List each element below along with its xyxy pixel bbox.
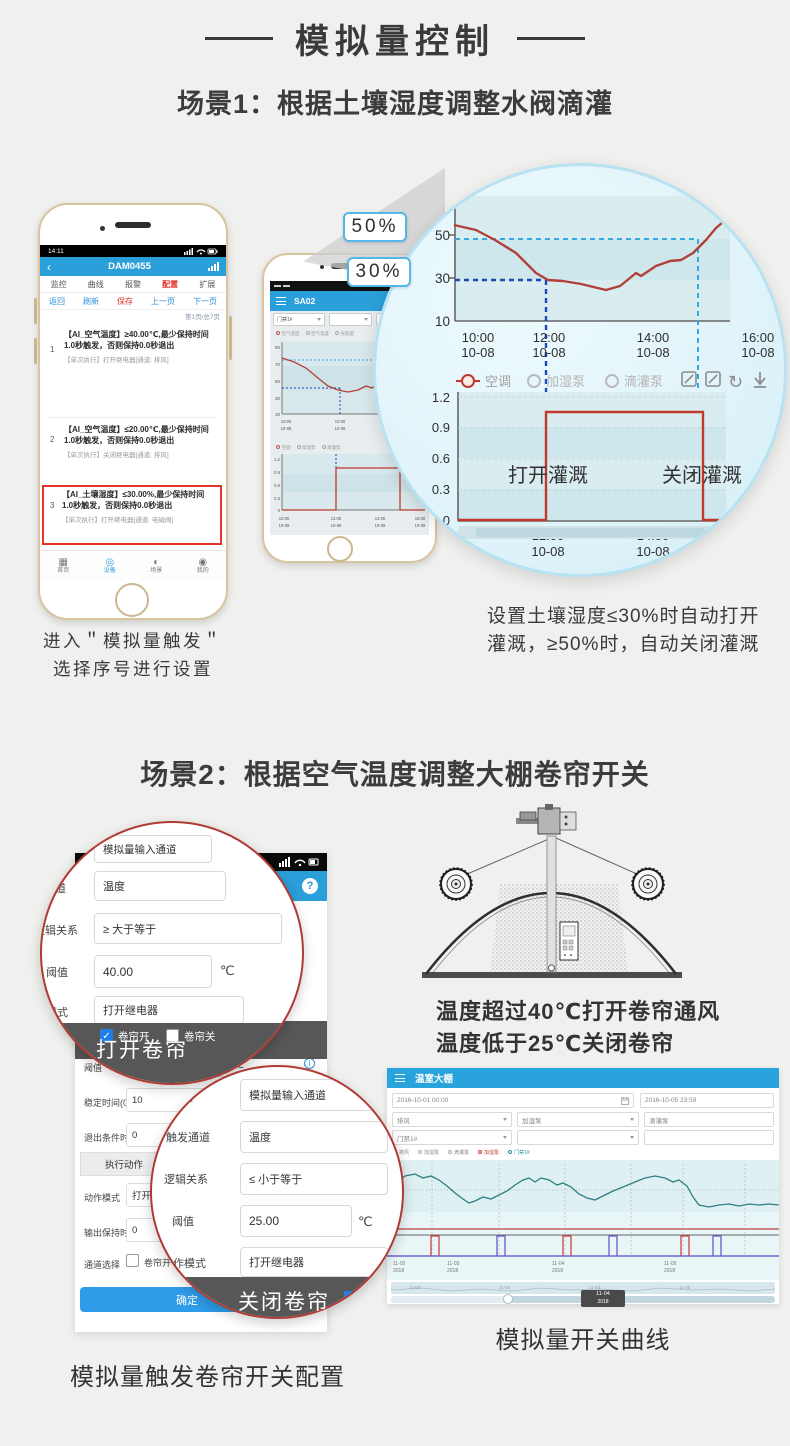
phone1-caption-line2: 选择序号进行设置 — [24, 656, 242, 681]
logic-relation-label: 逻辑关系 — [164, 1171, 208, 1187]
dashboard-card: 温室大棚 2016-10-01 00:00 2016-10-05 23:59 排… — [387, 1068, 779, 1304]
right-roller-wheel — [632, 868, 664, 900]
greenhouse-note-line2: 温度低于25℃关闭卷帘 — [436, 1026, 674, 1058]
svg-text:11-05: 11-05 — [664, 1261, 677, 1267]
date-from-input[interactable]: 2016-10-01 00:00 — [392, 1093, 634, 1108]
phone1-caption-line1: 进入＂模拟量触发＂ — [24, 628, 242, 653]
phone1-app-header: ‹ DAM0455 — [40, 257, 226, 276]
help-icon[interactable]: ? — [302, 878, 318, 894]
dashboard-caption: 模拟量开关曲线 — [387, 1320, 779, 1355]
svg-text:10-08: 10-08 — [335, 426, 346, 431]
svg-text:10-08: 10-08 — [636, 345, 669, 360]
svg-text:0.9: 0.9 — [432, 420, 450, 435]
svg-text:0.6: 0.6 — [274, 483, 280, 488]
tab-monitor[interactable]: 监控 — [51, 279, 67, 290]
svg-text:50: 50 — [275, 379, 281, 384]
channel-select-label: 通道选择 — [84, 1258, 120, 1271]
phone1-tab-bar: 监控 曲线 报警 配置 扩展 — [40, 276, 226, 293]
close-curtain-magnifier: 触发源类型 模拟量输入通道 触发通道 温度 逻辑关系 ≤ 小于等于 阈值 25.… — [150, 1065, 404, 1319]
scene2-title: 场景2：根据空气温度调整大棚卷帘开关 — [0, 753, 790, 793]
rule2-index: 2 — [50, 435, 54, 444]
svg-text:10-08: 10-08 — [531, 544, 564, 559]
chevron-down-icon — [364, 318, 368, 321]
phone1-volume-up-button[interactable] — [34, 298, 37, 324]
tab-config-active[interactable]: 配置 — [162, 279, 178, 290]
wifi-icon — [295, 860, 305, 863]
scene2-form-caption: 模拟量触发卷帘开关配置 — [70, 1357, 345, 1392]
trigger-source-label: 触发源类型 — [150, 1089, 193, 1105]
nav-mine[interactable]: ◉我的 — [180, 551, 227, 580]
phone1-speaker — [115, 222, 151, 228]
phone1-screen: 14:11 ‹ DAM0455 监控 曲线 报警 配置 扩展 — [40, 245, 226, 580]
svg-text:16:00: 16:00 — [742, 330, 775, 345]
svg-text:12:00: 12:00 — [331, 516, 342, 521]
dashboard-title: 温室大棚 — [415, 1071, 453, 1085]
svg-text:0: 0 — [443, 513, 450, 528]
phone1-bottom-nav: ▦首页 ◎设备 ◐场景 ◉我的 — [40, 550, 226, 580]
rule2-action: 【单次执行】关闭继电器[通道: 排风] — [64, 451, 218, 460]
menu-icon[interactable] — [276, 297, 286, 305]
chart-toolbar-icons[interactable] — [682, 372, 720, 386]
nav-devices[interactable]: ◎设备 — [87, 551, 134, 580]
phone1-toolbar: 返回 刷新 保存 上一页 下一页 — [40, 293, 226, 310]
scrollbar-knob[interactable] — [503, 1294, 513, 1304]
logic-relation-field[interactable]: ≤ 小于等于 — [240, 1163, 388, 1195]
status-icons — [184, 247, 218, 255]
wifi-icon — [197, 250, 205, 252]
channel-select-1[interactable]: 排风 — [392, 1112, 512, 1127]
svg-text:14:00: 14:00 — [637, 330, 670, 345]
svg-text:11-04: 11-04 — [552, 1261, 565, 1267]
nav-home[interactable]: ▦首页 — [40, 551, 87, 580]
svg-text:0.3: 0.3 — [432, 482, 450, 497]
phone1-camera — [100, 226, 105, 231]
channel-select-6[interactable] — [644, 1130, 774, 1145]
save-button[interactable]: 保存 — [117, 296, 133, 307]
work-mode-label: 工作模式 — [40, 1004, 68, 1020]
scene1-note-line1: 设置土壤湿度≤30%时自动打开 — [487, 601, 759, 628]
action-mode-field[interactable]: 打开继电器 — [240, 1247, 388, 1277]
user-icon: ◉ — [198, 557, 207, 568]
threshold-label: 阈值 — [46, 964, 68, 980]
nav-scenes[interactable]: ◐场景 — [133, 551, 180, 580]
svg-text:关闭灌溉: 关闭灌溉 — [662, 464, 742, 487]
svg-text:0.3: 0.3 — [274, 496, 280, 501]
signal-icon — [208, 262, 220, 271]
date-to-input[interactable]: 2016-10-05 23:59 — [640, 1093, 774, 1108]
svg-text:2018: 2018 — [664, 1268, 675, 1274]
svg-text:12:00: 12:00 — [335, 419, 346, 424]
svg-text:50: 50 — [435, 228, 450, 243]
svg-text:30: 30 — [275, 396, 281, 401]
svg-text:打开灌溉: 打开灌溉 — [508, 464, 588, 487]
channel-select-5[interactable] — [517, 1130, 639, 1145]
rule3-item[interactable]: 【AI_土壤湿度】≤30.00%,最少保持时间1.0秒触发，否则保持0.0秒退出… — [62, 490, 214, 525]
next-page-button[interactable]: 下一页 — [193, 296, 217, 307]
action-mode-label: 动作模式 — [162, 1255, 206, 1271]
control-box — [560, 922, 578, 960]
curtain-close-checkbox-checked[interactable]: ✓ — [344, 1291, 356, 1303]
phone1-clock: 14:11 — [48, 248, 64, 255]
magnifier-circle: 50 30 10 10:00 10-08 12:00 10-08 14:00 1… — [373, 163, 787, 577]
action-mode-label: 动作模式 — [84, 1191, 120, 1204]
refresh-button[interactable]: 刷新 — [83, 296, 99, 307]
scene1-note-line2: 灌溉，≥50%时，自动关闭灌溉 — [487, 629, 759, 656]
chevron-down-icon — [630, 1118, 634, 1121]
svg-text:加湿泵: 加湿泵 — [546, 374, 585, 389]
rule2-item[interactable]: 【AI_空气温度】≤20.00℃,最少保持时间1.0秒触发，否则保持0.0秒退出… — [64, 425, 218, 460]
device-icon: ◎ — [105, 557, 114, 568]
svg-text:滴灌泵: 滴灌泵 — [624, 374, 663, 389]
svg-text:1.2: 1.2 — [432, 390, 450, 405]
svg-text:12:00: 12:00 — [533, 330, 566, 345]
rule3-title: 【AI_土壤湿度】≤30.00%,最少保持时间1.0秒触发，否则保持0.0秒退出 — [62, 490, 214, 512]
partial-label: 择 — [188, 1289, 199, 1305]
page-title-row: 模拟量控制 — [0, 14, 790, 63]
scene-icon: ◐ — [153, 557, 159, 568]
chevron-down-icon — [317, 318, 321, 321]
threshold-field[interactable]: 25.00 — [240, 1205, 352, 1237]
phone2-home-button[interactable] — [327, 536, 353, 562]
svg-text:10:00: 10:00 — [281, 419, 292, 424]
trigger-channel-label: 触发通道 — [166, 1129, 210, 1145]
channel-select-4[interactable]: 门禁1# — [392, 1130, 512, 1145]
dashboard-chart: 11-02 2018 11-03 2018 11-04 2018 11-05 2… — [387, 1160, 779, 1280]
svg-text:10:00: 10:00 — [279, 516, 290, 521]
rule1-title: 【AI_空气温度】≥40.00℃,最少保持时间1.0秒触发，否则保持0.0秒退出 — [64, 330, 218, 352]
page-title: 模拟量控制 — [295, 14, 495, 63]
rule3-index: 3 — [50, 501, 54, 510]
divider — [48, 417, 218, 418]
unit-celsius: ℃ — [220, 963, 235, 979]
page-indicator: 第1页/总7页 — [40, 311, 220, 321]
refresh-icon[interactable]: ↻ — [728, 372, 743, 392]
chevron-down-icon — [630, 1136, 634, 1139]
channel-select-3[interactable]: 滴灌泵 — [644, 1112, 774, 1127]
menu-icon[interactable] — [395, 1074, 405, 1082]
svg-text:10-08: 10-08 — [461, 345, 494, 360]
phone1-app-title: DAM0455 — [51, 261, 208, 272]
dashboard-header: 温室大棚 — [387, 1068, 779, 1088]
curtain-close-label: 卷帘关 — [184, 1029, 216, 1044]
tab-extend[interactable]: 扩展 — [199, 279, 215, 290]
greenhouse-diagram — [420, 804, 690, 990]
partial-label-2: 关 — [360, 1290, 371, 1305]
svg-text:10-08: 10-08 — [279, 523, 290, 528]
svg-text:10:00: 10:00 — [462, 330, 495, 345]
chevron-down-icon — [503, 1118, 507, 1121]
svg-text:1.2: 1.2 — [274, 457, 280, 462]
scrollbar-handle[interactable] — [507, 1296, 775, 1303]
rule1-action: 【单次执行】打开继电器[通道: 排风] — [64, 356, 218, 365]
rule3-action: 【单次执行】打开继电器[通道: 电磁阀] — [62, 516, 214, 525]
svg-text:10: 10 — [435, 314, 450, 329]
svg-text:0.6: 0.6 — [432, 451, 450, 466]
unit-celsius: ℃ — [358, 1214, 373, 1230]
svg-text:2018: 2018 — [393, 1268, 404, 1274]
dashboard-legend: 排风 加湿泵 滴灌泵 加湿泵 门禁1# — [393, 1149, 530, 1156]
tab-alarm[interactable]: 报警 — [125, 279, 141, 290]
source-type-field[interactable]: 模拟量输入通道 — [240, 1079, 388, 1111]
trigger-channel-field[interactable]: 温度 — [94, 871, 226, 901]
tab-curve[interactable]: 曲线 — [88, 279, 104, 290]
trigger-channel-field[interactable]: 温度 — [240, 1121, 388, 1153]
svg-text:10: 10 — [275, 412, 281, 417]
logic-relation-label: 逻辑关系 — [40, 922, 78, 938]
slider-date-badge: 11-04 2018 — [581, 1290, 625, 1307]
download-icon[interactable] — [754, 372, 766, 387]
page: 模拟量控制 场景1：根据土壤湿度调整水阀滴灌 14:11 ‹ DAM0455 — [0, 0, 790, 1446]
roller-motor — [516, 804, 576, 834]
title-rule-left — [205, 37, 273, 40]
svg-text:30: 30 — [435, 271, 450, 286]
prev-page-button[interactable]: 上一页 — [151, 296, 175, 307]
svg-text:10-08: 10-08 — [331, 523, 342, 528]
threshold-label: 阈值 — [172, 1213, 194, 1229]
title-rule-right — [517, 37, 585, 40]
svg-text:90: 90 — [275, 345, 281, 350]
source-type-field[interactable]: 模拟量输入通道 — [94, 835, 212, 863]
svg-text:0: 0 — [278, 508, 281, 513]
channel-select-2[interactable]: 加湿泵 — [517, 1112, 639, 1127]
svg-text:0.9: 0.9 — [274, 470, 280, 475]
phone2-camera — [320, 265, 324, 269]
chevron-down-icon — [503, 1136, 507, 1139]
rule1-index: 1 — [50, 345, 54, 354]
svg-text:10-08: 10-08 — [636, 544, 669, 559]
magnified-charts: 50 30 10 10:00 10-08 12:00 10-08 14:00 1… — [376, 166, 787, 577]
home-grid-icon: ▦ — [59, 557, 68, 568]
calendar-icon — [621, 1097, 629, 1105]
svg-text:10-08: 10-08 — [532, 345, 565, 360]
phone1-home-button[interactable] — [115, 583, 149, 617]
return-button[interactable]: 返回 — [49, 296, 65, 307]
threshold-field[interactable]: 40.00 — [94, 955, 212, 988]
svg-text:11-03: 11-03 — [447, 1261, 460, 1267]
phone1-status-bar: 14:11 — [40, 245, 226, 257]
phone1-volume-down-button[interactable] — [34, 338, 37, 364]
work-mode-field[interactable]: 打开继电器 — [94, 996, 244, 1024]
greenhouse-note-line1: 温度超过40℃打开卷帘通风 — [436, 994, 720, 1026]
scene1-title: 场景1：根据土壤湿度调整水阀滴灌 — [0, 82, 790, 121]
svg-text:2018: 2018 — [447, 1268, 458, 1274]
callout-30-percent: 30% — [347, 257, 411, 287]
svg-text:11-02: 11-02 — [393, 1261, 406, 1267]
svg-text:70: 70 — [275, 362, 281, 367]
close-curtain-banner: 关闭卷帘 — [238, 1286, 330, 1316]
rule2-title: 【AI_空气温度】≤20.00℃,最少保持时间1.0秒触发，否则保持0.0秒退出 — [64, 425, 218, 447]
select-2[interactable] — [329, 313, 373, 326]
partial-label: 择 — [48, 1031, 59, 1047]
callout-50-percent: 50% — [343, 212, 407, 242]
phone2-app-title: SA02 — [294, 296, 315, 306]
logic-relation-field[interactable]: ≥ 大于等于 — [94, 913, 282, 944]
status-icons — [279, 857, 319, 867]
open-curtain-banner: 打开卷帘 — [96, 1034, 188, 1064]
svg-text:空调: 空调 — [485, 374, 511, 389]
device-select[interactable]: 门禁1# — [273, 313, 325, 326]
svg-text:2018: 2018 — [552, 1268, 563, 1274]
svg-text:10-08: 10-08 — [741, 345, 774, 360]
left-roller-wheel — [440, 868, 472, 900]
trigger-channel-label: 触发通道 — [40, 880, 66, 896]
phone1-power-button[interactable] — [229, 316, 232, 360]
curtain-open-checkbox[interactable] — [126, 1254, 139, 1267]
rule1-item[interactable]: 【AI_空气温度】≥40.00℃,最少保持时间1.0秒触发，否则保持0.0秒退出… — [64, 330, 218, 365]
svg-text:10-08: 10-08 — [281, 426, 292, 431]
